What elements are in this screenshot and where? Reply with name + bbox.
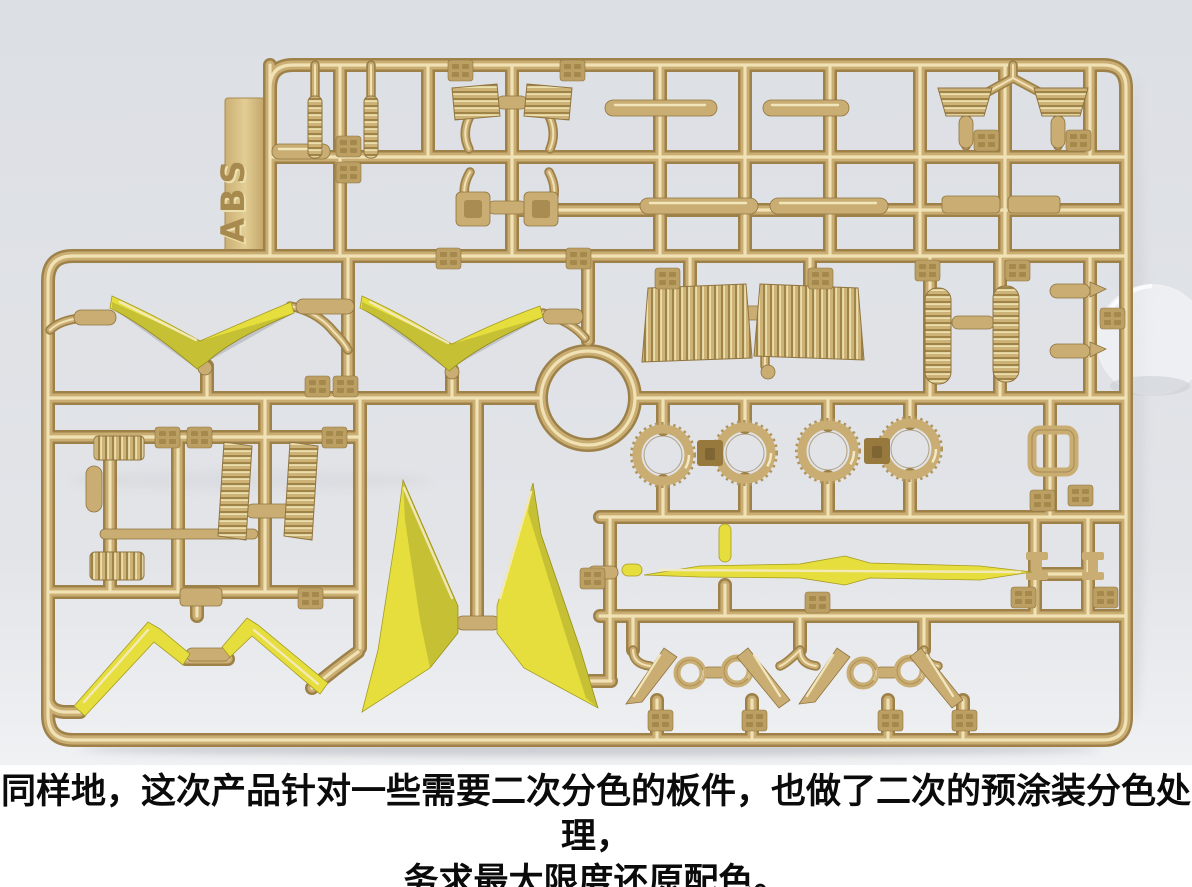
caption: 同样地，这次产品针对一些需要二次分色的板件，也做了二次的预涂装分色处理， 务求最… xyxy=(0,765,1192,887)
screenshot: ABS ABS xyxy=(0,0,1192,887)
sprue-photo-svg: ABS ABS xyxy=(0,0,1192,765)
abs-tab-label: ABS xyxy=(214,155,252,242)
product-photo: ABS ABS xyxy=(0,0,1192,765)
caption-line-2: 务求最大限度还原配色。 xyxy=(0,860,1192,887)
caption-line-1: 同样地，这次产品针对一些需要二次分色的板件，也做了二次的预涂装分色处理， xyxy=(0,770,1192,860)
